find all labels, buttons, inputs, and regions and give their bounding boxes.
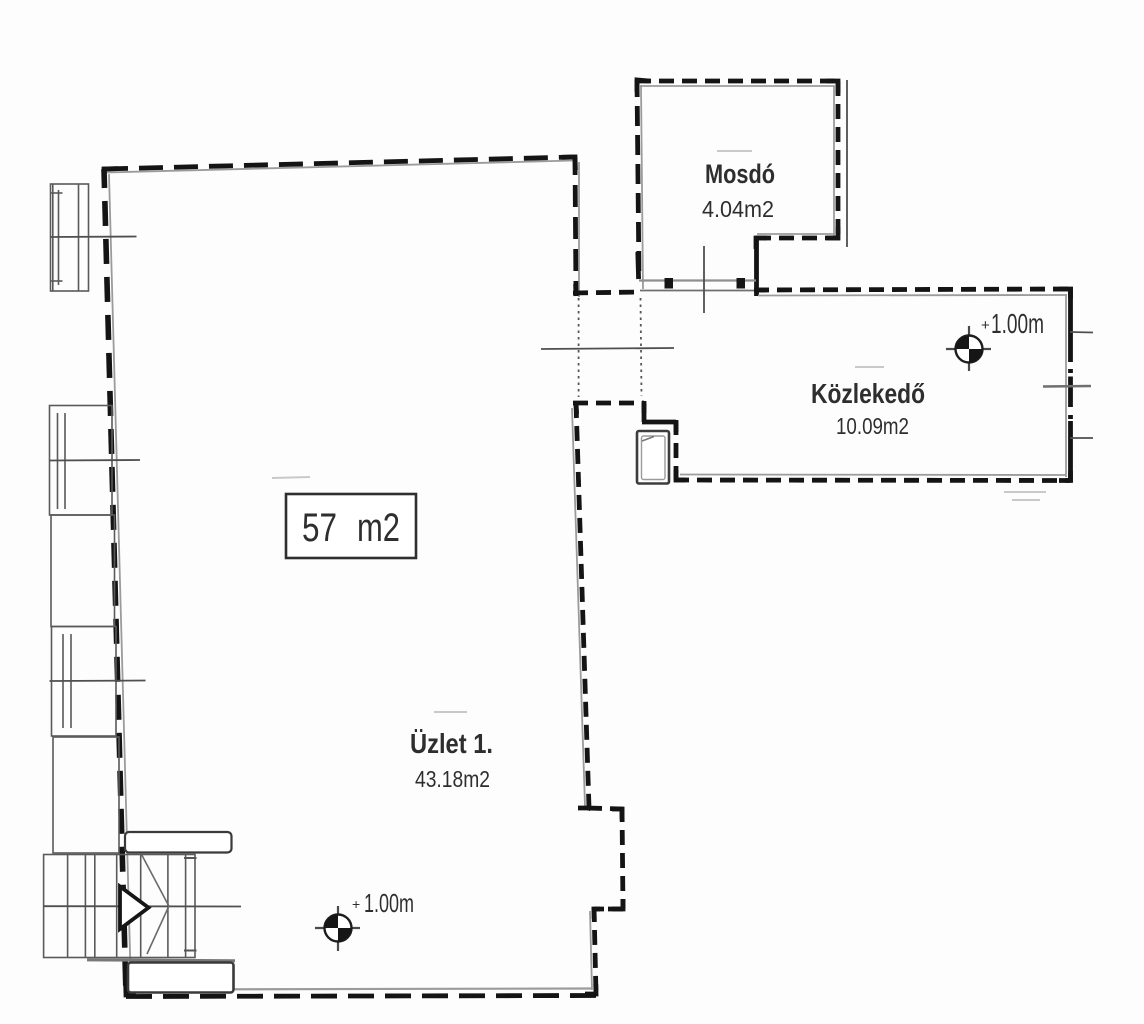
svg-text:Üzlet 1.: Üzlet 1. (410, 728, 493, 759)
svg-text:4.04m2: 4.04m2 (702, 196, 774, 222)
svg-text:+: + (981, 317, 990, 334)
svg-text:+: + (352, 896, 360, 912)
svg-text:1.00m: 1.00m (991, 308, 1044, 339)
svg-text:Mosdó: Mosdó (705, 159, 775, 189)
svg-text:43.18m2: 43.18m2 (415, 766, 490, 792)
svg-text:m2: m2 (357, 506, 400, 550)
svg-text:1.00m: 1.00m (364, 888, 414, 918)
svg-text:57: 57 (302, 506, 337, 550)
svg-text:10.09m2: 10.09m2 (836, 413, 909, 439)
svg-text:Közlekedő: Közlekedő (811, 378, 925, 409)
